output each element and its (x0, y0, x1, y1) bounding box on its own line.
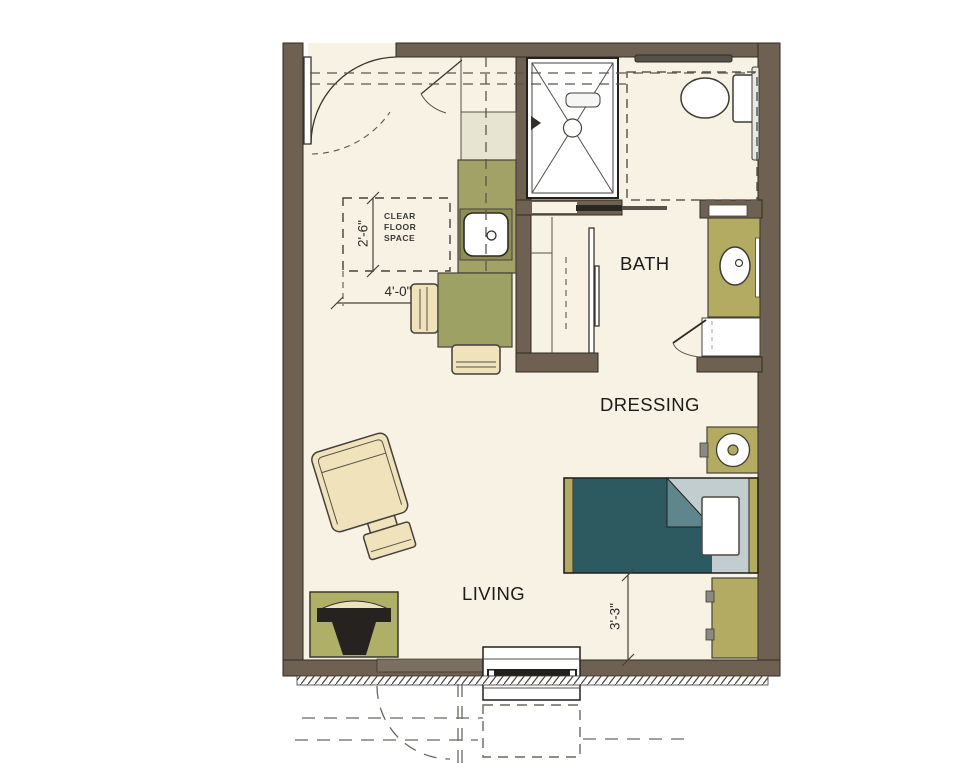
bath-entry-header (622, 206, 667, 210)
wall-bath-south-stub (697, 357, 762, 372)
dim-3-3-label: 3'-3" (608, 596, 623, 638)
patio-outline (483, 705, 580, 757)
chair-south (452, 345, 500, 374)
vanity-sink (720, 247, 750, 285)
dresser (706, 578, 758, 658)
living-label: LIVING (462, 583, 525, 605)
floor-plan-drawing (0, 0, 960, 783)
exterior-door-swing (377, 686, 450, 759)
entry-door-leaf (304, 57, 311, 144)
vanity-drain (736, 260, 743, 267)
dim-4-0-label: 4'-0" (373, 284, 423, 299)
nightstand (700, 427, 758, 473)
bath-label: BATH (620, 253, 670, 275)
vanity-shelf (709, 205, 747, 216)
sliding-door-panel-2 (595, 266, 599, 326)
bed (564, 478, 758, 573)
clear-floor-space-label: CLEAR FLOOR SPACE (384, 211, 416, 244)
sliding-door-panel (589, 228, 594, 353)
tv-console (310, 592, 398, 657)
shower-drain (564, 119, 582, 137)
wall-left (283, 43, 303, 676)
shower (527, 58, 618, 198)
wall-closet-south (516, 353, 598, 372)
shower-seat (566, 93, 600, 107)
kitchen-cabinet (461, 112, 516, 160)
bed-footboard (564, 478, 573, 573)
table (438, 273, 512, 347)
pillow (702, 497, 739, 555)
floor-plan: BATH DRESSING LIVING CLEAR FLOOR SPACE 2… (0, 0, 960, 783)
shower-threshold (576, 205, 622, 211)
toilet-bowl (681, 78, 729, 118)
grab-bar-right (752, 67, 759, 160)
wall-kitchen-east (516, 215, 531, 355)
shower-door-opening (532, 202, 577, 213)
grab-bar-top (635, 55, 732, 62)
exterior-hatch (297, 676, 768, 685)
dim-2-6-label: 2'-6" (356, 213, 371, 255)
toilet (681, 75, 757, 122)
vanity-mirror (756, 238, 760, 297)
sink-drain (487, 231, 496, 240)
dressing-label: DRESSING (600, 394, 700, 416)
vanity (708, 218, 760, 317)
bed-headboard (749, 478, 758, 573)
